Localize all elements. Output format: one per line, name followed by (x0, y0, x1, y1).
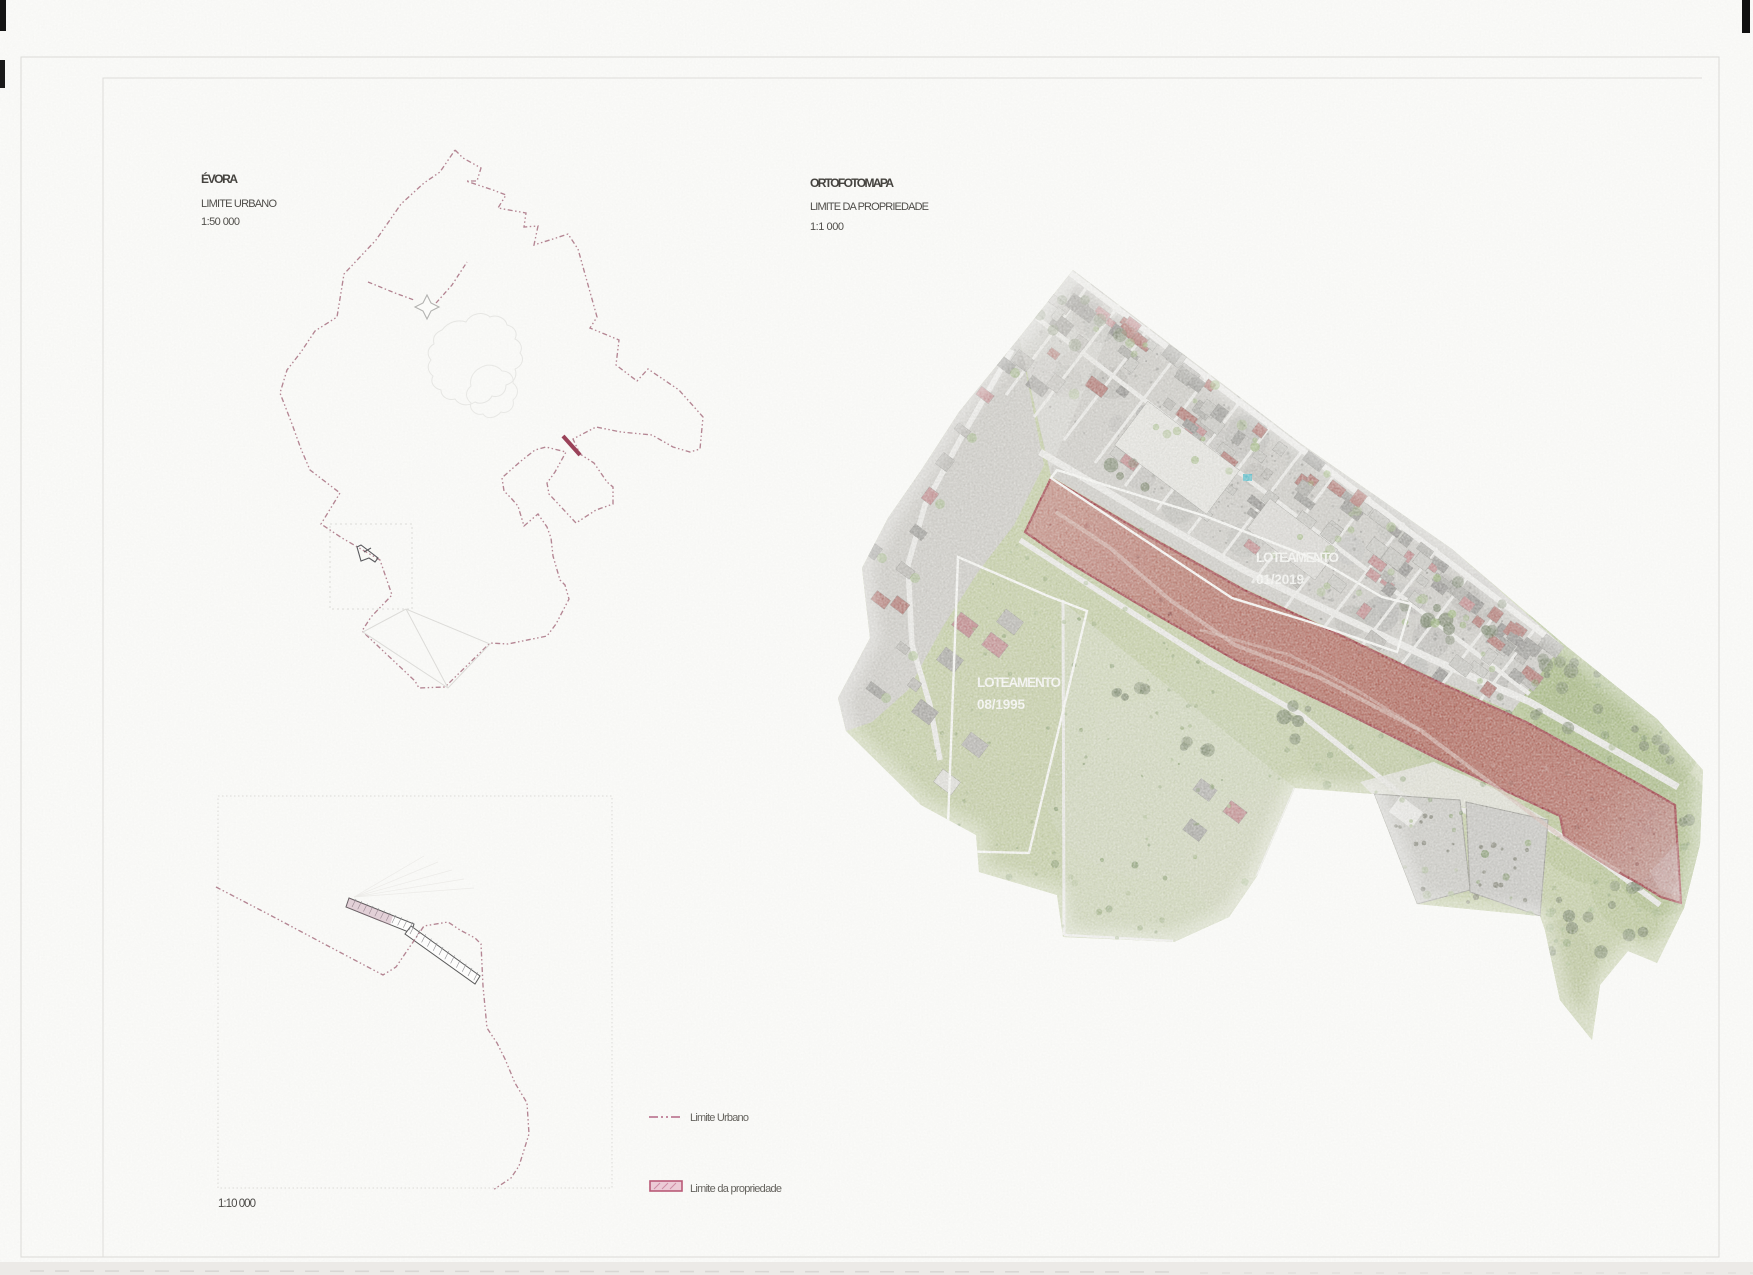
svg-text:ORTOFOTOMAPA: ORTOFOTOMAPA (810, 176, 894, 190)
svg-text:Limite da propriedade: Limite da propriedade (690, 1183, 782, 1195)
svg-text:LIMITE URBANO: LIMITE URBANO (201, 198, 277, 210)
svg-text:1:10 000: 1:10 000 (218, 1198, 256, 1210)
svg-text:1:50 000: 1:50 000 (201, 216, 240, 228)
svg-text:ÉVORA: ÉVORA (201, 171, 238, 186)
svg-text:LIMITE DA PROPRIEDADE: LIMITE DA PROPRIEDADE (810, 201, 929, 213)
svg-text:Limite Urbano: Limite Urbano (690, 1112, 749, 1124)
svg-text:1:1 000: 1:1 000 (810, 221, 844, 233)
